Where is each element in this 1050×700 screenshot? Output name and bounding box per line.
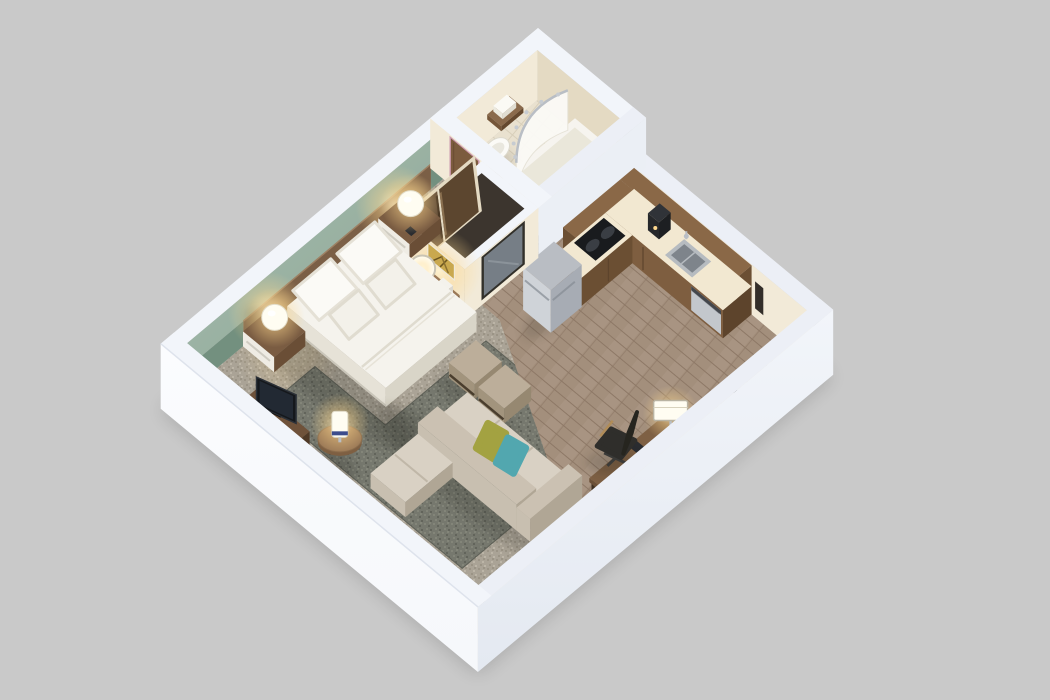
floorplan-scene-svg — [0, 0, 1050, 700]
sphere-lamp-south — [262, 304, 288, 330]
sphere-lamp-north — [398, 191, 424, 217]
floorplan-render — [0, 0, 1050, 700]
